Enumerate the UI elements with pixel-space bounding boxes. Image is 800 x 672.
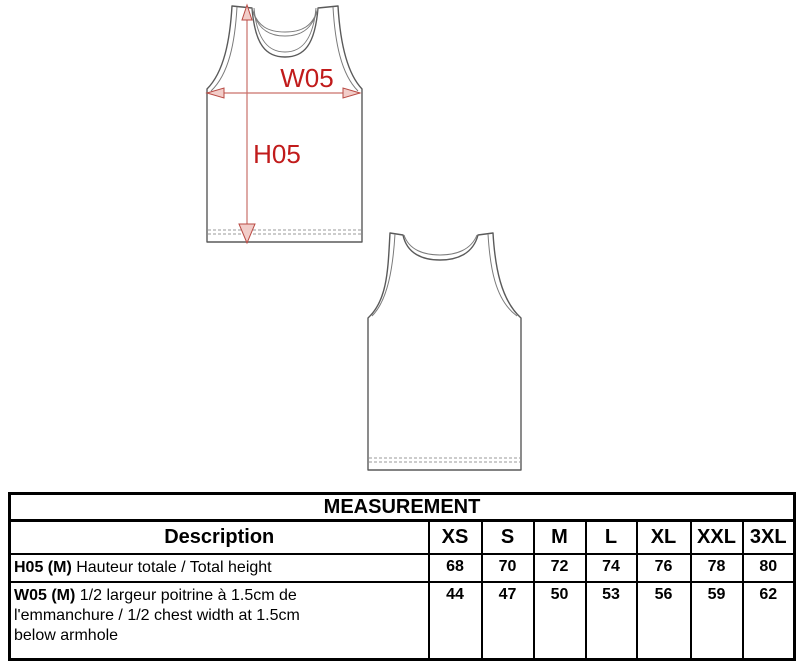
size-header-xs: XS [429, 521, 482, 554]
back-neck-through-opening [252, 8, 318, 32]
row-description: W05 (M) 1/2 largeur poitrine à 1.5cm de … [10, 582, 429, 660]
table-row-h05: H05 (M) Hauteur totale / Total height 68… [10, 554, 795, 582]
value-cell: 62 [743, 582, 795, 660]
tank-top-front-outline [207, 6, 362, 242]
table-title-row: MEASUREMENT [10, 494, 795, 521]
value-cell: 44 [429, 582, 482, 660]
size-header-m: M [534, 521, 586, 554]
value-cell: 76 [637, 554, 691, 582]
size-header-xxl: XXL [691, 521, 743, 554]
value-cell: 68 [429, 554, 482, 582]
row-description: H05 (M) Hauteur totale / Total height [10, 554, 429, 582]
size-header-l: L [586, 521, 637, 554]
measure-text: Hauteur totale / Total height [72, 559, 272, 576]
h05-label: H05 [253, 139, 301, 169]
w05-label: W05 [280, 63, 333, 93]
table-header-row: Description XS S M L XL XXL 3XL [10, 521, 795, 554]
value-cell: 53 [586, 582, 637, 660]
back-neck-binding [404, 235, 477, 255]
value-cell: 72 [534, 554, 586, 582]
value-cell: 59 [691, 582, 743, 660]
size-header-3xl: 3XL [743, 521, 795, 554]
front-neck-binding [254, 8, 316, 52]
size-header-s: S [482, 521, 534, 554]
tank-top-front-view: W05 H05 [193, 0, 373, 250]
measure-code: H05 (M) [14, 559, 72, 576]
measure-code: W05 (M) [14, 587, 75, 604]
description-header: Description [10, 521, 429, 554]
value-cell: 50 [534, 582, 586, 660]
value-cell: 74 [586, 554, 637, 582]
table-title: MEASUREMENT [10, 494, 795, 521]
table-row-w05: W05 (M) 1/2 largeur poitrine à 1.5cm de … [10, 582, 795, 660]
value-cell: 56 [637, 582, 691, 660]
value-cell: 80 [743, 554, 795, 582]
measurement-table: MEASUREMENT Description XS S M L XL XXL … [8, 492, 796, 661]
value-cell: 78 [691, 554, 743, 582]
value-cell: 47 [482, 582, 534, 660]
tank-top-back-outline [368, 233, 521, 470]
size-header-xl: XL [637, 521, 691, 554]
tank-top-back-view [355, 222, 525, 472]
spec-sheet: W05 H05 MEASUREMENT [0, 0, 800, 672]
value-cell: 70 [482, 554, 534, 582]
